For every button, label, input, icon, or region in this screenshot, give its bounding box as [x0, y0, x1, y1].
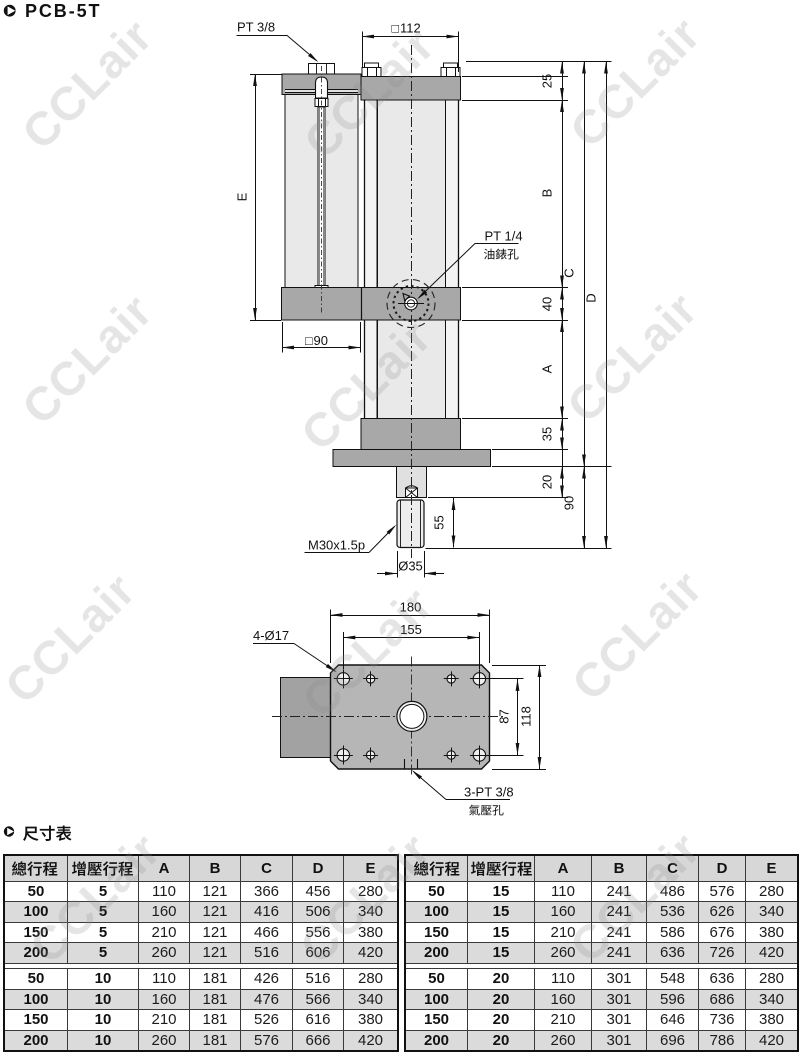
- svg-text:E: E: [235, 192, 250, 201]
- svg-text:155: 155: [400, 622, 422, 637]
- svg-text:112: 112: [400, 21, 421, 36]
- svg-text:□: □: [392, 22, 400, 36]
- svg-text:PCB-5T: PCB-5T: [25, 1, 101, 21]
- svg-text:PT 3/8: PT 3/8: [237, 20, 275, 35]
- svg-text:87: 87: [497, 709, 512, 723]
- svg-text:B: B: [540, 189, 555, 198]
- svg-text:90: 90: [314, 333, 328, 348]
- svg-text:3-PT 3/8: 3-PT 3/8: [464, 785, 514, 800]
- svg-text:Ø35: Ø35: [398, 559, 423, 574]
- svg-text:35: 35: [540, 427, 555, 441]
- svg-text:4-Ø17: 4-Ø17: [253, 628, 289, 643]
- svg-text:A: A: [540, 364, 555, 373]
- svg-text:90: 90: [562, 496, 577, 510]
- svg-text:40: 40: [540, 297, 555, 311]
- svg-text:25: 25: [540, 74, 555, 88]
- svg-text:C: C: [562, 268, 577, 277]
- svg-text:20: 20: [540, 475, 555, 489]
- svg-text:M30x1.5p: M30x1.5p: [308, 538, 365, 553]
- svg-text:□: □: [305, 334, 313, 348]
- svg-text:PT 1/4: PT 1/4: [485, 229, 523, 244]
- svg-text:55: 55: [432, 515, 447, 529]
- svg-text:180: 180: [400, 600, 422, 615]
- svg-text:D: D: [584, 293, 599, 302]
- svg-text:118: 118: [519, 706, 534, 727]
